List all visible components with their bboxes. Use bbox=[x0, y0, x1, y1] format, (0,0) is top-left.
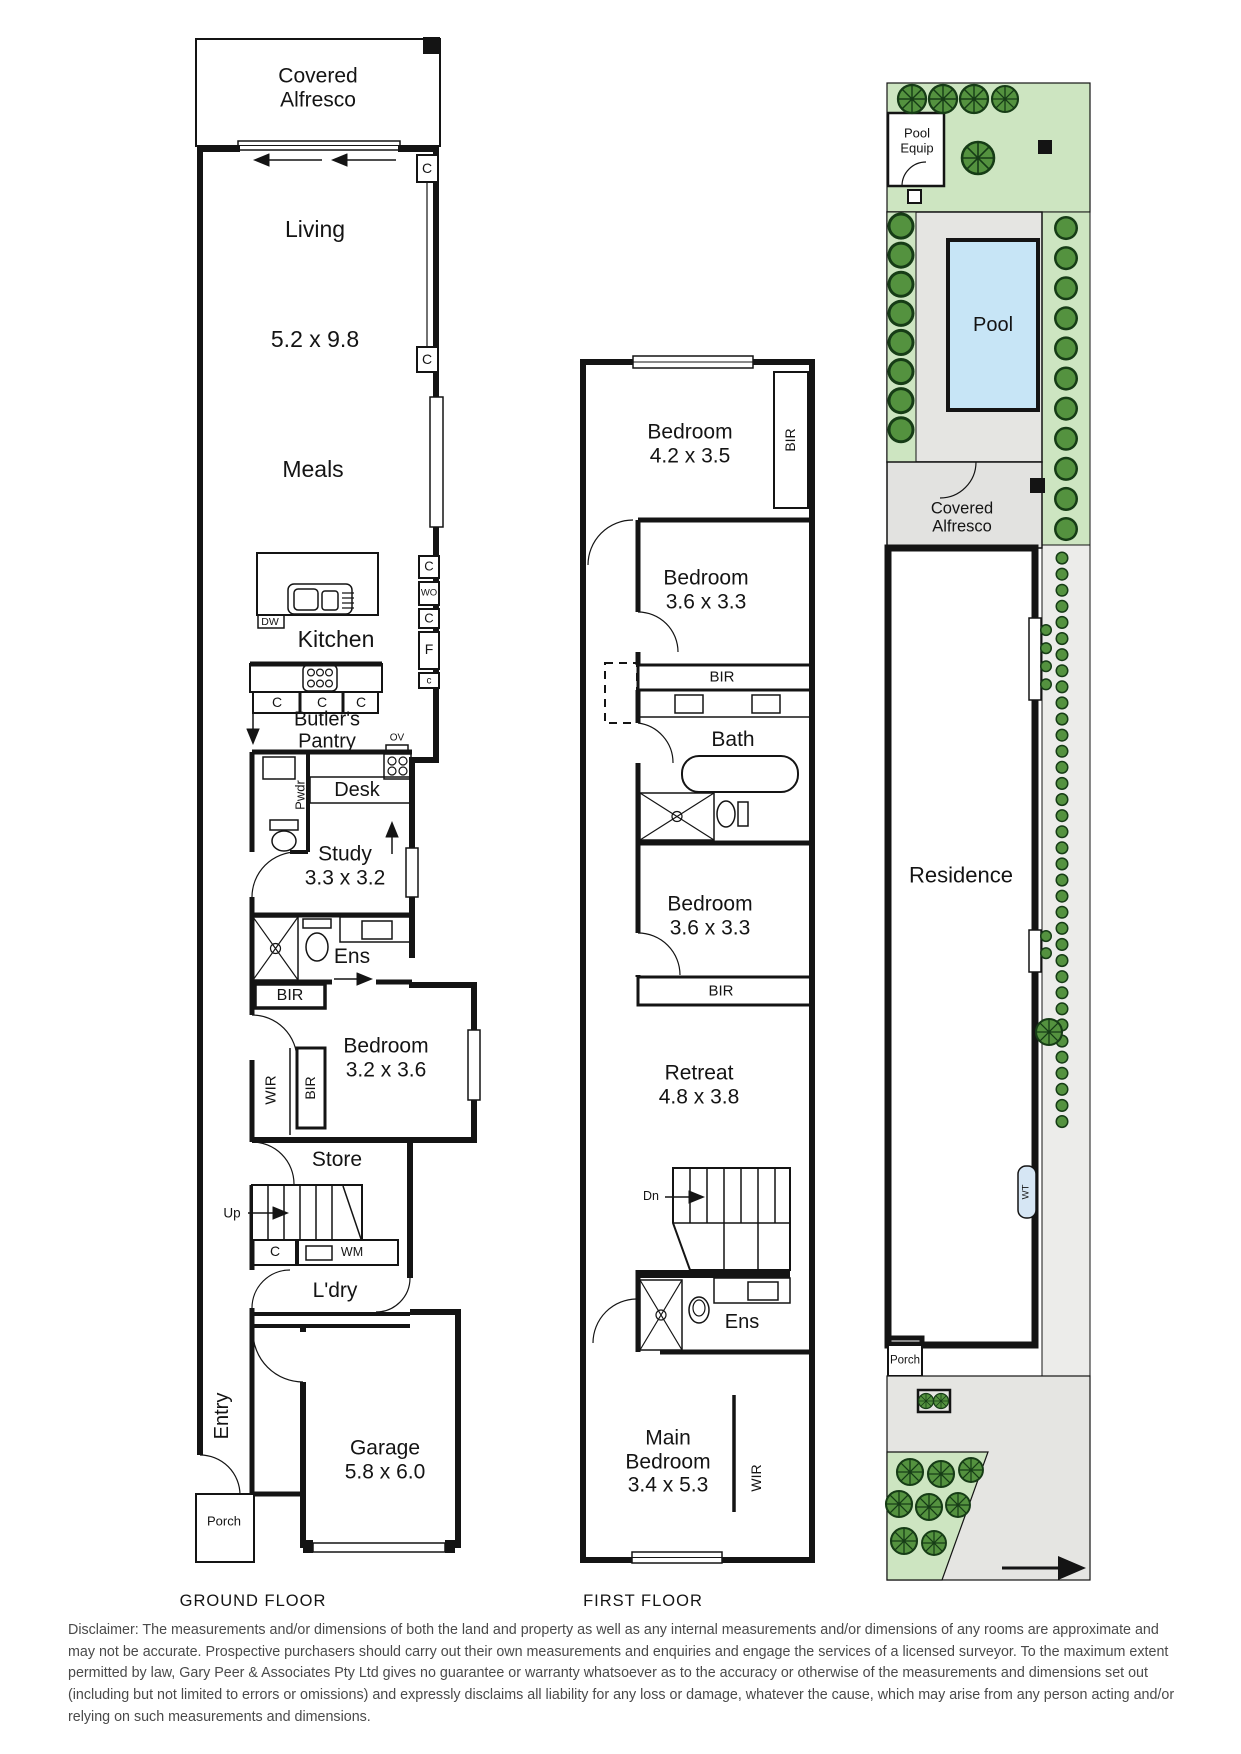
laundry-door bbox=[252, 1270, 290, 1308]
first-floor-plan bbox=[583, 356, 812, 1563]
label-study: Study 3.3 x 3.2 bbox=[305, 842, 386, 889]
label-ens-g: Ens bbox=[334, 945, 370, 969]
label-bir-g: BIR bbox=[277, 987, 304, 1005]
label-desk: Desk bbox=[334, 779, 380, 801]
label-covered-alfresco-site: Covered Alfresco bbox=[931, 500, 993, 537]
label-bedroom1: Bedroom 4.2 x 3.5 bbox=[647, 420, 732, 467]
label-pwdr: Pwdr bbox=[294, 780, 309, 810]
label-up: Up bbox=[223, 1205, 240, 1220]
label-residence: Residence bbox=[909, 864, 1013, 889]
label-wir-f: WIR bbox=[749, 1464, 765, 1491]
label-bir-vert-g: BIR bbox=[303, 1076, 319, 1099]
label-pool-equip: Pool Equip bbox=[900, 126, 933, 155]
label-wt: WT bbox=[1022, 1185, 1033, 1200]
label-f: F bbox=[425, 642, 434, 658]
label-bedroom-g: Bedroom 3.2 x 3.6 bbox=[343, 1034, 428, 1081]
label-bench-c1: C bbox=[272, 695, 282, 711]
label-dn: Dn bbox=[643, 1189, 659, 1203]
stairs-first bbox=[665, 1168, 790, 1270]
residence bbox=[888, 548, 1035, 1345]
label-kitchen: Kitchen bbox=[298, 627, 375, 653]
label-bath: Bath bbox=[711, 728, 754, 752]
label-bedroom2: Bedroom 3.6 x 3.3 bbox=[663, 566, 748, 613]
label-ldry: L'dry bbox=[313, 1279, 358, 1303]
label-c-stair: C bbox=[270, 1244, 280, 1260]
label-dw: DW bbox=[261, 617, 279, 629]
side-entry-door bbox=[376, 1278, 410, 1312]
label-c-right2: C bbox=[424, 612, 433, 627]
caption-ground-floor: GROUND FLOOR bbox=[180, 1592, 327, 1610]
label-c-top1: C bbox=[422, 161, 432, 177]
label-ov: OV bbox=[390, 732, 404, 743]
label-bir3: BIR bbox=[708, 984, 733, 1001]
label-porch-site: Porch bbox=[890, 1355, 920, 1368]
label-ens-f: Ens bbox=[725, 1311, 759, 1333]
label-c-top2: C bbox=[422, 352, 432, 368]
label-living: Living bbox=[285, 217, 345, 243]
store-door bbox=[252, 1142, 294, 1184]
garage-roller-door bbox=[313, 1543, 445, 1552]
label-retreat: Retreat 4.8 x 3.8 bbox=[659, 1061, 740, 1108]
study-door bbox=[252, 852, 297, 897]
label-pool: Pool bbox=[973, 314, 1013, 336]
label-main-bedroom: Main Bedroom 3.4 x 5.3 bbox=[625, 1427, 710, 1498]
label-bir2: BIR bbox=[709, 670, 734, 687]
label-wo: WO bbox=[421, 589, 437, 600]
label-covered-alfresco-g: Covered Alfresco bbox=[278, 64, 357, 111]
ground-ensuite bbox=[252, 915, 412, 982]
disclaimer-text: Disclaimer: The measurements and/or dime… bbox=[68, 1620, 1176, 1729]
label-meals: Meals bbox=[282, 457, 343, 483]
label-butlers-pantry: Butler's Pantry bbox=[294, 709, 360, 754]
label-wm: WM bbox=[341, 1245, 363, 1259]
label-c-right1: C bbox=[424, 560, 433, 575]
entry-door bbox=[200, 1455, 240, 1495]
floorplan-drawing bbox=[0, 0, 1241, 1754]
label-bir1: BIR bbox=[783, 428, 799, 451]
label-store: Store bbox=[312, 1148, 362, 1172]
garage-door-int bbox=[253, 1332, 303, 1382]
label-c-small: c bbox=[427, 675, 432, 686]
caption-first-floor: FIRST FLOOR bbox=[583, 1592, 703, 1610]
label-porch-g: Porch bbox=[207, 1515, 241, 1530]
floorplan-page: Covered Alfresco Living 5.2 x 9.8 C C Me… bbox=[0, 0, 1241, 1754]
label-garage: Garage 5.8 x 6.0 bbox=[345, 1436, 426, 1483]
label-living-dim: 5.2 x 9.8 bbox=[271, 327, 359, 353]
label-wir-g: WIR bbox=[264, 1075, 281, 1104]
stairs-ground bbox=[248, 1185, 362, 1240]
label-entry: Entry bbox=[211, 1393, 233, 1440]
label-bedroom3: Bedroom 3.6 x 3.3 bbox=[667, 892, 752, 939]
